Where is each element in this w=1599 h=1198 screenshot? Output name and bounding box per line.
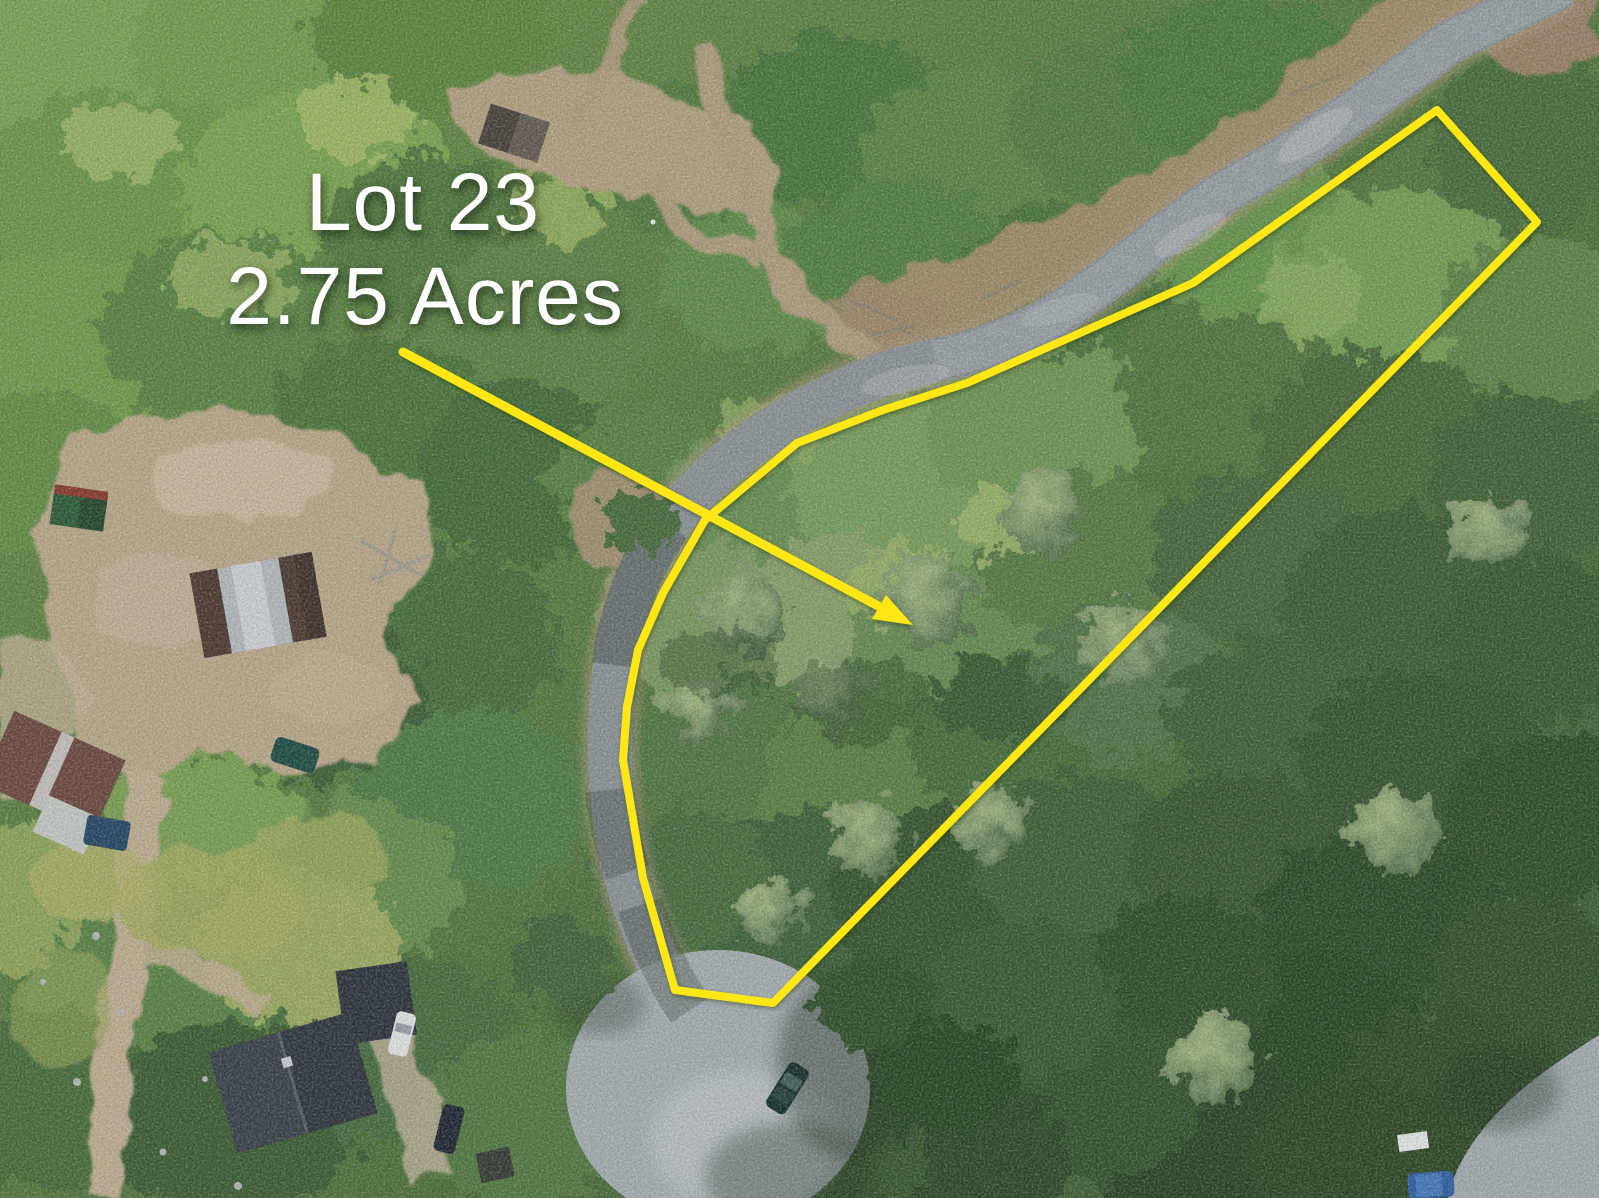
aerial-photo: Lot 23 2.75 Acres [0,0,1599,1198]
lot-number-label: Lot 23 [306,157,540,248]
acreage-label: 2.75 Acres [226,251,623,342]
photo-grain-light [0,0,1599,1198]
lot-listing-photo: Lot 23 2.75 Acres [0,0,1599,1198]
